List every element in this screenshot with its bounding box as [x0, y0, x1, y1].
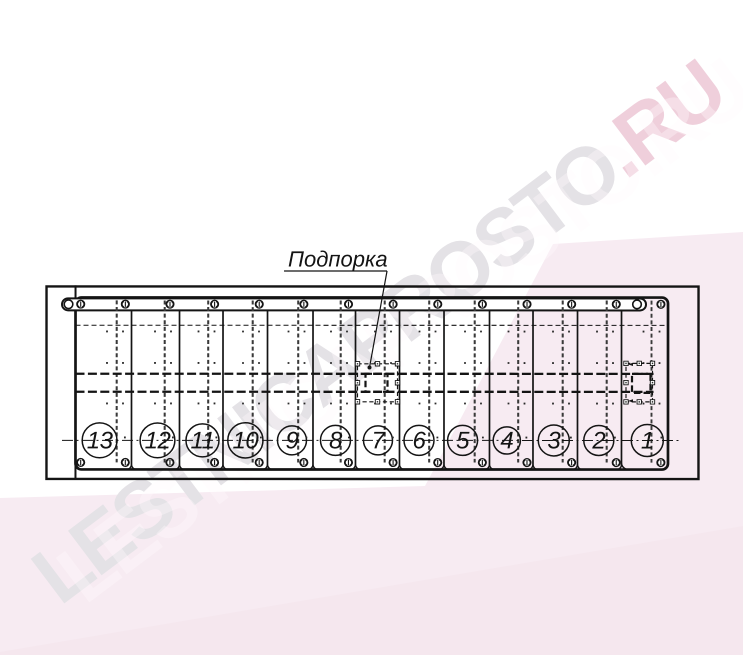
svg-text:3: 3 [547, 427, 561, 454]
svg-text:10: 10 [233, 427, 260, 454]
svg-text:9: 9 [286, 427, 299, 454]
svg-text:12: 12 [145, 427, 171, 454]
svg-text:Подпорка: Подпорка [288, 246, 388, 271]
svg-text:13: 13 [87, 427, 114, 454]
svg-text:1: 1 [641, 427, 654, 454]
svg-text:8: 8 [329, 427, 343, 454]
svg-text:6: 6 [413, 427, 427, 454]
svg-text:2: 2 [591, 427, 605, 454]
svg-text:11: 11 [191, 427, 215, 454]
svg-text:4: 4 [500, 427, 513, 454]
svg-text:5: 5 [456, 427, 470, 454]
svg-text:7: 7 [372, 427, 387, 454]
